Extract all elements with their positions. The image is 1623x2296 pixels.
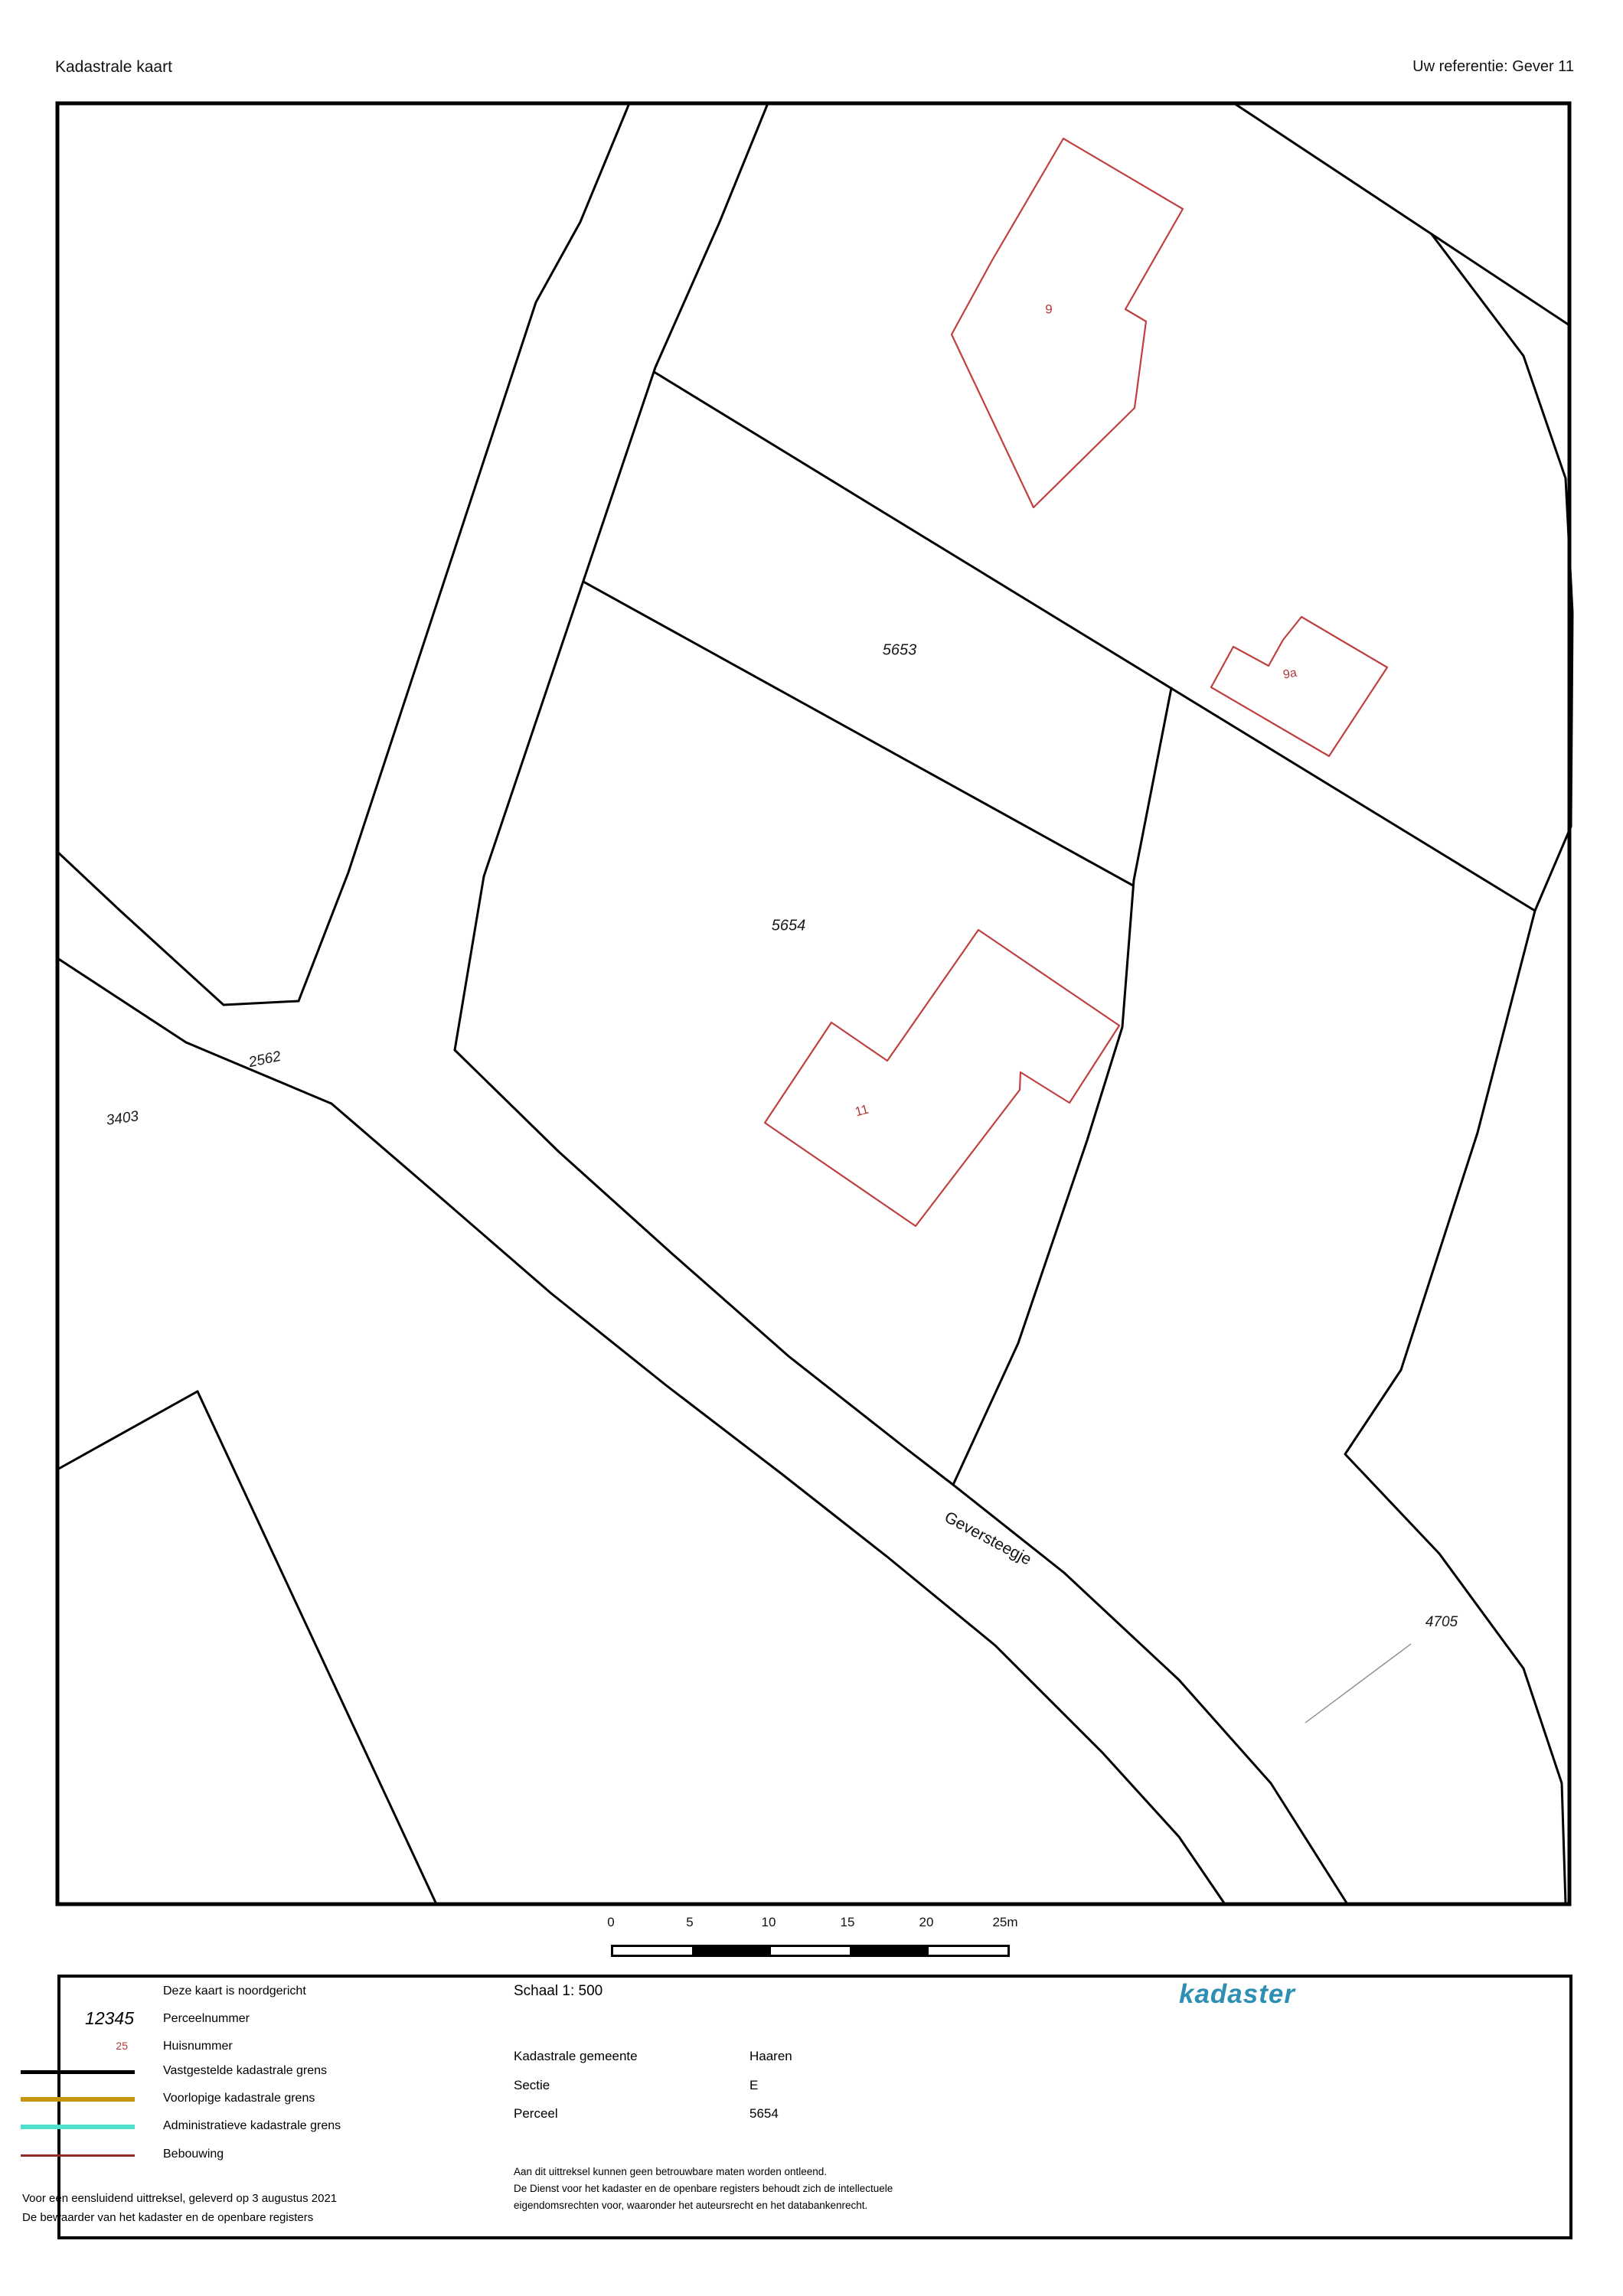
kadaster-logo-wordmark: kadaster [1179,1981,1295,2007]
scale-label-15: 15 [841,1915,855,1930]
parcel-line-boundary-4705-east [1345,234,1572,1904]
scale-segment-0 [613,1947,692,1955]
legend-swatch-2 [21,2125,135,2129]
building-11-outline [765,930,1119,1226]
parcel-line-road-east-edge-north [455,103,768,1050]
field-value-0: Haaren [749,2050,792,2063]
legend-issued-line1: Voor een eensluidend uittreksel, gelever… [22,2193,337,2204]
scale-segment-2 [771,1947,850,1955]
scale-label-0: 0 [607,1915,614,1930]
legend-disclaimer-line2: De Dienst voor het kadaster en de openba… [514,2183,893,2194]
parcel-line-road-northeast-edge [455,1050,1347,1904]
parcel-label-3403: 3403 [106,1108,140,1129]
legend-issued-line2: De bewaarder van het kadaster en de open… [22,2212,313,2223]
page-title: Kadastrale kaart [55,58,172,77]
field-label-1: Sectie [514,2079,550,2092]
scale-segment-3 [850,1947,929,1955]
legend-item-label-0: Vastgestelde kadastrale grens [163,2065,327,2077]
legend-swatch-1 [21,2097,135,2102]
field-value-1: E [749,2079,758,2092]
legend-housenumber-label: Huisnummer [163,2040,233,2053]
legend-item-label-3: Bebouwing [163,2148,224,2161]
reference-text: Uw referentie: Gever 11 [1412,58,1574,76]
legend-parcelnumber-label: Perceelnummer [163,2013,250,2025]
house-number-9: 9 [1045,302,1052,316]
scale-label-20: 20 [919,1915,934,1930]
parcel-line-divider-9-5653 [655,373,1535,911]
parcel-line-diagonal-top-right [1234,103,1569,325]
page-header: Kadastrale kaart Uw referentie: Gever 11 [0,0,1623,92]
parcel-line-left-spur-north-edge [57,852,299,1005]
legend-swatch-3 [21,2154,135,2157]
parcel-label-5653: 5653 [883,641,917,658]
field-label-0: Kadastrale gemeente [514,2050,638,2063]
house-number-9a: 9a [1282,667,1298,682]
legend-disclaimer-line1: Aan dit uittreksel kunnen geen betrouwba… [514,2167,827,2177]
legend-disclaimer-line3: eigendomsrechten voor, waaronder het aut… [514,2200,867,2211]
legend-north-note: Deze kaart is noordgericht [163,1985,306,1998]
parcel-label-5654: 5654 [772,917,806,934]
leader-line-4705 [1305,1644,1411,1723]
legend-swatch-0 [21,2070,135,2074]
scale-segment-1 [692,1947,771,1955]
legend-parcelnumber-symbol: 12345 [0,2010,134,2027]
legend-item-label-2: Administratieve kadastrale grens [163,2120,341,2132]
parcel-line-boundary-5654-east [953,688,1171,1485]
parcel-label-2562: 2562 [247,1049,282,1071]
parcel-line-left-spur-south-edge [57,958,331,1104]
scale-label-10: 10 [762,1915,776,1930]
scale-label-5: 5 [686,1915,693,1930]
building-9a-outline [1211,617,1387,756]
parcel-label-4705: 4705 [1425,1614,1458,1630]
parcel-line-triangle-bottom-left [57,1391,436,1904]
house-number-11: 11 [854,1102,870,1120]
field-value-2: 5654 [749,2107,779,2120]
scale-segment-4 [929,1947,1007,1955]
legend-item-label-1: Voorlopige kadastrale grens [163,2092,315,2105]
parcel-line-road-west-edge-north [299,103,629,1001]
field-label-2: Perceel [514,2107,558,2120]
parcel-line-road-southwest-edge [331,1104,1225,1904]
parcel-line-divider-5653-5654 [583,582,1133,885]
legend-housenumber-symbol: 25 [0,2040,128,2051]
building-9-outline [952,139,1183,507]
map-border [57,103,1569,1904]
street-name-label: Geversteegje [942,1508,1034,1569]
scale-bar-graphic [611,1945,1010,1957]
scale-label-25m: 25m [992,1915,1017,1930]
legend-scale-text: Schaal 1: 500 [514,1984,603,1998]
